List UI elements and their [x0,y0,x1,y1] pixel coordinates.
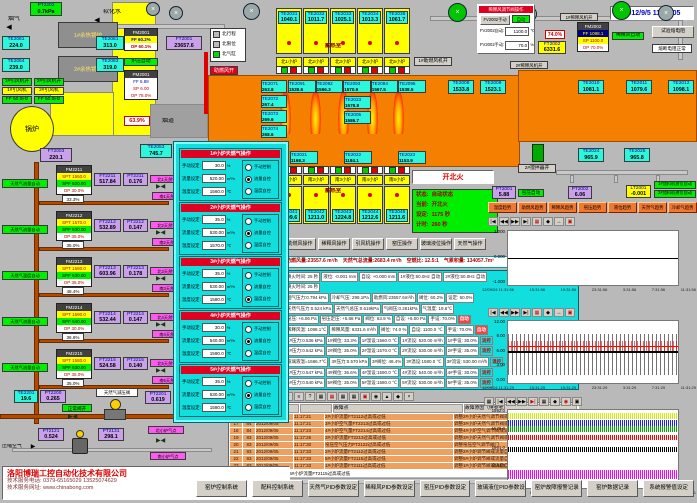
fv2002-auto-button[interactable]: 自动 [512,15,530,23]
radio-temp[interactable]: 温度自控 [243,401,278,413]
trend-button[interactable]: 液位趋势 [608,202,637,213]
id-fan2-status: 2#引风机开 [34,78,64,86]
fm-row: OP 35.0% [57,233,91,240]
radio-icon [245,338,252,345]
fm-title: FM2212 [57,212,91,219]
regenerator-label: 蓄热室 [318,43,348,49]
burner-panel-2: 2#小炉天燃气操作 手动设定:35.0% 流量设定:530.00m³/h 温度设… [179,202,282,255]
gas-branch-3: 天然气温度自动 FM2213 SPT 1580.0SPF 530.00OP 35… [0,257,190,303]
south-burner-label[interactable]: 南4小炉 [357,175,383,185]
trend-button[interactable]: 稀释风趋势 [548,202,577,213]
radio-label: 流量自控 [254,284,271,290]
field-label: 流量设定: [182,284,201,290]
alarm-header-cell: 故障点 [333,404,463,413]
radio-icon [245,284,252,291]
cell: 5#手设: 35.0% [446,378,479,388]
ytick: 3.00 [496,363,505,367]
chart-toolbar-icon[interactable]: |◀ [495,397,505,406]
parameter-row: 烟气压力:0.794 kPa冷却气压: 298.1Pa助燃风:23557.6m³… [285,293,577,303]
summary-item: 天然气总流量:2683.4 m³/h [343,259,402,265]
cell: 1538.6 [289,87,315,93]
chart-toolbar-icon[interactable]: ▣ [572,397,582,406]
cell: 1153.9 [399,158,425,164]
toolbar-icon[interactable]: × [404,392,414,401]
fm2002-panel[interactable]: FM2002 PF 1098.1SP 1100.0OP 70.0% [577,22,609,52]
temp-set-input[interactable]: 1560.0 [202,187,226,196]
cell: 83 [243,456,255,462]
valve-icon[interactable]: ▶◀ [156,368,165,374]
unit: ℃ [227,297,232,302]
radio-temp[interactable]: 温度自控 [243,293,278,305]
chart-toolbar-icon[interactable]: ▣ [565,308,575,317]
fire-status-row: 设定:1175 秒 [413,210,497,220]
pt2131-readout: PT2131298.1 [98,428,124,441]
chart-toolbar-icon[interactable]: ↔ [554,308,564,317]
xtick: 11:31:29 [681,385,696,390]
te2010-readout: TE20101081.1 [578,80,604,94]
te2032-line: 1011.7 [306,17,326,23]
pm2001-title: PM2001 [125,71,157,78]
chart1-plot[interactable] [507,230,679,286]
trend-button[interactable]: 冷却气趋势 [668,202,697,213]
chart3-plot[interactable] [507,409,679,489]
radio-icon [245,296,252,303]
pt2001-readout: PT20015.88 [492,186,516,199]
chart-toolbar-icon[interactable]: ▶| [528,397,538,406]
pt2201-line: 0.619 [146,397,170,403]
xtick: 19:31:29 [561,385,577,390]
fm-title: FM2215 [57,350,91,357]
port-dot [395,193,399,197]
toolbar-icon[interactable]: ▦ [316,392,326,401]
operation-button[interactable]: 天然气操作 [454,238,486,250]
chart2-toolbar: |◀◀◀▶▶▶|▦◆↔▣ [488,308,575,317]
cell: 2#压力:0.542 kPa [285,346,325,356]
cell: 21 [230,449,242,455]
manual-set-input[interactable]: 35.0 [202,215,226,224]
chart-toolbar-icon[interactable]: ▶▶ [510,308,520,317]
burner-indicator[interactable] [276,66,302,74]
cell: 自动状态 [432,192,454,198]
radio-manual[interactable]: 手动控制 [243,323,278,335]
mode-radio-group[interactable]: 手动控制 流量自控 温度自控 [242,160,279,199]
radio-flow[interactable]: 流量自控 [243,227,278,239]
toolbar-icon[interactable]: ▣ [360,392,370,401]
ft-readout: FT2211517.84 [94,173,121,186]
chart-toolbar-icon[interactable]: ◀◀ [506,397,516,406]
chart-toolbar-icon[interactable]: ◉ [561,397,571,406]
cell: 3#温设:1580.0 ℃ [404,357,443,367]
trend-button[interactable]: 窑压趋势 [578,202,607,213]
burner-indicator[interactable] [384,66,410,74]
flow-set-input[interactable]: 520.00 [202,174,226,183]
flow-set-input[interactable]: 540.00 [202,336,226,345]
gas-branch-1: 天然气流量自动 FM2211 SPT 1560.0SPF 520.00OP 30… [0,165,190,211]
unit: % [227,325,231,330]
chart-toolbar-icon[interactable]: ◀◀ [499,217,509,226]
ft-line: 532.44 [95,317,120,323]
te2083-line: 319.0 [97,65,123,71]
cell: 窑压定压: +5.88 Pa [320,315,363,325]
te2061-readout: TE2061224.0 [2,36,30,50]
cell: 4#流设: 540.00 m³/h [400,368,445,378]
radio-manual[interactable]: 手动控制 [243,269,278,281]
cell: 3#小炉空气量FT2213过高或过低 [325,421,453,427]
cell: 269.6 [262,117,286,123]
furnace-left-temps: TE2071263.8TE2072267.4TE2073269.6TE20742… [261,80,287,138]
radio-flow[interactable]: 流量自控 [243,281,278,293]
cell: 1578.8 [345,103,370,109]
xtick: 12/09/04 11:31:56 [482,287,514,292]
cell: 5#阀位: 35.0% [326,378,359,388]
radio-icon [245,350,252,357]
cell: 11:17:33 [294,449,324,455]
radio-manual[interactable]: 手动控制 [243,377,278,389]
burner-control-popup[interactable]: 1#小炉天燃气操作 手动设定:30.0% 流量设定:520.00m³/h 温度设… [174,142,288,422]
te2081-line: 313.0 [97,43,123,49]
fire-status-row: 状态:自动状态 [413,190,497,200]
te2053-line: 745.7 [141,151,171,157]
nav-button[interactable]: 窑炉控制系统 [196,480,247,497]
te2024-line: 965.9 [579,155,603,161]
cell: 当前: [416,202,429,208]
radio-label: 温度自控 [254,296,271,302]
alarm-header-cell [300,404,332,413]
toolbar-icon[interactable]: ≡ [294,392,304,401]
chart-toolbar-icon[interactable]: ↔ [554,217,564,226]
burner-indicator[interactable] [303,166,329,174]
nav-button[interactable]: 天然气PID参数设定 [308,480,359,497]
kiln-pressure-auto-label: 窑压自动 [518,189,544,197]
fv2002-auto-input[interactable]: 1100.0 [505,27,529,36]
cell: 1#小炉流量FT2111过高或过低 [325,463,453,469]
nav-button[interactable]: 窑炉数据记录 [587,480,638,497]
pt-line: 0.176 [124,179,147,185]
fv2002-auto-unit: ℃ [530,29,535,34]
te-readout: TE2074268.6 [261,125,287,138]
fm2215-panel[interactable]: FM2215 SPT 1580.0SPF 530.00OP 35.0% [56,349,92,379]
te2034-line: 1013.3 [360,17,380,23]
fm2001-panel[interactable]: FM2001 FF 60.2%OP 60.1% [124,28,158,51]
manual-set-input[interactable]: 35.0 [202,377,226,386]
radio-label: 流量自控 [254,176,271,182]
trend-button[interactable]: 天然气趋势 [638,202,667,213]
cell: 83 [243,435,255,441]
fm2212-panel[interactable]: FM2212 SPT 1570.0SPF 530.00OP 35.0% [56,211,92,241]
burner-indicator[interactable] [384,166,410,174]
xtick: 3:31:29 [623,385,636,390]
valve-icon[interactable]: ▶◀ [156,230,165,236]
cell: 阀位: 63.9 % [363,315,393,325]
mode-radio-group[interactable]: 手动控制 流量自控 温度自控 [242,268,279,307]
chart-toolbar-icon[interactable]: ◆ [543,308,553,317]
cell: 状态: [416,192,429,198]
south-burner-label[interactable]: 南3小炉 [330,175,356,185]
cell: 11:17:21 [294,421,324,427]
cell: 1570.9 [344,87,370,93]
pt-line: 0.147 [124,225,147,231]
port-dot [395,41,399,45]
pm2001-panel[interactable]: PM2001 FF 5.88SP 6.00OP 78.0% [124,70,158,100]
burner-indicator[interactable] [303,66,329,74]
valve-icon[interactable]: ▶◀ [68,414,77,420]
cell: 1567.5 [372,87,398,93]
cell: 自设: +0.000 mm [359,272,397,282]
chart-toolbar-icon[interactable]: |◀ [488,217,498,226]
cell: 1538.5 [399,87,425,93]
operation-button[interactable]: 窑压操作 [386,238,418,250]
fv2002-manual-row: FV2002手动: 70.0 % [480,41,534,50]
operation-button[interactable]: 助燃风操作 [284,238,316,250]
pt2121-readout: PT21210.524 [38,428,64,441]
unit: % [227,271,231,276]
cell: 2012/09/05 [256,428,293,434]
toolbar-icon[interactable]: ▦ [327,392,337,401]
field-label: 温度设定: [182,351,201,357]
fv2002-manual-button[interactable]: FV2002手动 [480,15,510,25]
toolbar-icon[interactable]: ▦ [349,392,359,401]
valve-icon[interactable]: ▶◀ [156,276,165,282]
south-burner-label[interactable]: 南5小炉 [384,175,410,185]
chart-toolbar-icon[interactable]: ▶▶ [517,397,527,406]
valve-position: 35.0% [62,379,84,387]
ytick: 12.00 [494,320,505,324]
temp-set-input[interactable]: 1590.0 [202,349,226,358]
cell: 4#小炉空气量FT2214过高或过低 [325,428,453,434]
te2201-readout: TE220119.6 [14,390,38,403]
te2045-line: 1211.6 [387,215,407,221]
chart-toolbar-icon[interactable]: ▣ [565,217,575,226]
flow-set-input[interactable]: 530.00 [202,228,226,237]
valve-icon[interactable]: ▶◀ [156,438,165,444]
burner-panel-title: 2#小炉天燃气操作 [181,204,280,212]
radio-flow[interactable]: 流量自控 [243,173,278,185]
cell: 烟气压力:0.794 kPa [285,293,329,303]
radio-icon [245,380,252,387]
toolbar-icon[interactable]: ▦ [338,392,348,401]
chart3-series5 [508,447,678,452]
chart-toolbar-icon[interactable]: ◆ [550,397,560,406]
legend-swatch [213,41,220,48]
toolbar-icon[interactable]: ▲ [382,392,392,401]
fan-icon: × [658,5,674,21]
chart-toolbar-icon[interactable]: ▶| [521,308,531,317]
xtick: 23:31:29 [592,385,608,390]
cell: 2#小炉流量FT2112过高或过低 [325,414,453,420]
legend-row: 北行程 [211,29,245,39]
cell: 窑压空气压力PT2122过高或过低 [325,442,453,448]
cell: 2#手设: 35.0% [446,346,479,356]
temp-set-input[interactable]: 1580.0 [202,295,226,304]
te2033-readout: TE20331025.1 [332,11,354,24]
te2064-readout: TE2064239.0 [2,58,30,72]
chart-toolbar-icon[interactable]: ▦ [484,397,494,406]
te-readout: TE20051586.7 [344,111,371,124]
fire-status-panel: 状态:自动状态当前:开北火设定:1175 秒计时:260 秒 [412,189,498,233]
chart1-toolbar: |◀◀◀▶▶▶|▦◆↔▣ [488,217,575,226]
radio-icon [245,326,252,333]
chart2-yaxis: 12.009.006.003.000.00 [484,320,505,382]
burner-panel-title: 4#小炉天燃气操作 [181,312,280,320]
nav-button[interactable]: 配料控制系统 [252,480,303,497]
crown-temps-row: TE20911538.6TE20921566.3TE20931570.9TE20… [288,80,426,93]
mode-radio-group[interactable]: 手动控制 流量自控 温度自控 [242,322,279,361]
ft-line: 524.58 [95,363,120,369]
nav-button[interactable]: 稀释风PID参数设定 [364,480,415,497]
nav-button[interactable]: 玻璃液位PID参数设定 [475,480,526,497]
operation-button[interactable]: 稀释风操作 [318,238,350,250]
nav-button[interactable]: 窑压PID参数设定 [420,480,471,497]
cell: 气阀压:0.261kPa [382,304,420,314]
cell: 18 [230,428,242,434]
field-label: 温度设定: [182,243,201,249]
chart-toolbar-icon[interactable]: ◀◀ [499,308,509,317]
cell: 4#温设:1590.0 ℃ [360,368,399,378]
radio-label: 流量自控 [254,392,271,398]
cell: 83 [243,442,255,448]
south-burner-label[interactable]: 南2小炉 [303,175,329,185]
chart3-series3 [508,426,678,432]
cell: 2012/09/05 [256,442,293,448]
chart-toolbar-icon[interactable]: ▶▶ [510,217,520,226]
fm2213-panel[interactable]: FM2213 SPT 1580.0SPF 530.00OP 35.0% [56,257,92,287]
toolbar-icon[interactable]: ◉ [371,392,381,401]
left-arrow-icon: ◀ [2,24,16,32]
burner-indicator[interactable] [330,166,356,174]
fm2214-panel[interactable]: FM2214 SPT 1590.0SPF 540.00OP 30.0% [56,303,92,333]
xtick: 15:31:56 [530,287,546,292]
chart3-toolbar: ▦|◀◀◀▶▶▶|▦◆◉▣ [484,397,582,406]
nav-button[interactable]: 窑炉故障报警记录 [531,480,582,497]
flow-set-input[interactable]: 530.00 [202,282,226,291]
manual-set-input[interactable]: 35.0 [202,269,226,278]
chart-toolbar-icon[interactable]: ◆ [543,217,553,226]
te2008-readout: TE20081533.8 [448,80,474,94]
test-fuse-button[interactable]: 试验熔电阻 [652,26,694,38]
cell: 玻璃液温=1586.7℃ [285,357,328,367]
fv2002-manual-input[interactable]: 70.0 [505,41,529,50]
cell: 窑压: +6.06 Pa [285,315,319,325]
port-dot [368,193,372,197]
gas-branch-2: 天然气流量自动 FM2212 SPT 1570.0SPF 530.00OP 35… [0,211,190,257]
trend-button[interactable]: 温度趋势 [488,202,517,213]
chart-toolbar-icon[interactable]: ▦ [532,217,542,226]
fm-row: SPT 1580.0 [57,357,91,364]
burner-indicator[interactable] [330,66,356,74]
ytick: 9.00 [496,334,505,338]
radio-temp[interactable]: 温度自控 [243,239,278,251]
burner-indicator[interactable] [357,66,383,74]
te-readout: TE2073269.6 [261,110,287,123]
branch-mode-label: 天然气流量自动 [2,179,48,188]
cell: 3#流设: 530.00 m³/h [445,357,490,367]
cell: 天然气总压:0.619kPa [334,304,381,314]
nav-button[interactable]: 系统报警值设定 [643,480,694,497]
te-readout: TE20211168.3 [290,151,318,164]
mode-radio-group[interactable]: 手动控制 流量自控 温度自控 [242,214,279,253]
cell: 1566.3 [317,87,343,93]
chart-toolbar-icon[interactable]: ▦ [539,397,549,406]
fm-row: SPF 530.00 [57,364,91,371]
unit: ℃ [227,189,232,194]
summary-item: 助燃风量:23557.6 m³/h [286,259,338,265]
pt2200-readout: PT22000.265 [40,390,66,403]
chart1-level-line [508,258,678,259]
radio-temp[interactable]: 温度自控 [243,347,278,359]
temp-set-input[interactable]: 1580.0 [202,403,226,412]
te2061-line: 224.0 [3,43,29,49]
radio-flow[interactable]: 流量自控 [243,389,278,401]
furnace-mid-temps: TE20231578.8TE20051586.7 [344,96,371,124]
mode-radio-group[interactable]: 手动控制 流量自控 温度自控 [242,376,279,415]
fm2211-panel[interactable]: FM2211 SPT 1560.0SPF 520.00OP 30.0% [56,165,92,195]
pt2002-readout: PT20026.06 [568,186,592,199]
valve-icon[interactable]: ▶◀ [156,322,165,328]
radio-label: 温度自控 [254,350,271,356]
radio-flow[interactable]: 流量自控 [243,335,278,347]
port-dot [287,41,291,45]
trend-button-row: 温度趋势助燃风趋势稀释风趋势窑压趋势液位趋势天然气趋势冷却气趋势 [488,202,697,213]
chart-toolbar-icon[interactable]: |◀ [488,308,498,317]
ft2002-line: 6331.6 [539,47,565,53]
xtick: 19:31:56 [561,287,577,292]
flow-meter-body [104,409,126,420]
legend-row: 北气缸 [211,49,245,59]
ft-line: 532.89 [95,225,120,231]
cell: 1586.7 [345,118,370,124]
radio-manual[interactable]: 手动控制 [243,161,278,173]
toolbar-icon[interactable]: ? [305,392,315,401]
id-fan1-label[interactable]: 1#引风机 [2,87,32,95]
te-readout: TE20931570.9 [343,80,371,93]
cell: 11:17:33 [294,463,324,469]
unit: m³/h [227,338,235,343]
chart-toolbar-icon[interactable]: ▶| [521,217,531,226]
xtick: 7:31:29 [652,385,665,390]
radio-label: 手动控制 [254,326,271,332]
id-fan2-label[interactable]: 2#引风机 [34,87,64,95]
valve-position: 36.6% [62,333,84,341]
valve-icon[interactable]: ▶◀ [156,184,165,190]
radio-icon [245,392,252,399]
flow-set-input[interactable]: 530.00 [202,390,226,399]
radio-temp[interactable]: 温度自控 [243,185,278,197]
operation-button[interactable]: 引风机操作 [352,238,384,250]
chart-toolbar-icon[interactable]: ▦ [532,308,542,317]
trend-button[interactable]: 助燃风趋势 [518,202,547,213]
chart3-yaxis: 1592.01578.01561.01544.01527.0 [482,409,505,487]
radio-manual[interactable]: 手动控制 [243,215,278,227]
pt-line: 0.178 [124,271,147,277]
burner-indicator[interactable] [357,166,383,174]
manual-set-input[interactable]: 30.0 [202,161,226,170]
fan-icon: × [448,3,467,22]
toolbar-icon[interactable]: ◆ [393,392,403,401]
cell: 268.6 [262,132,286,138]
operation-button[interactable]: 玻璃液位操作 [420,238,452,250]
cell: 22 [230,456,242,462]
chart2-plot[interactable] [507,320,679,384]
manual-set-input[interactable]: 30.0 [202,323,226,332]
ft2001-readout: FT200123657.6 [166,36,202,50]
cell: 11:17:30 [294,442,324,448]
fm2001-row: FF 60.2% [125,36,157,43]
cell: 天然气压力:0.524 kPa [285,304,333,314]
fire-direction-button[interactable]: 开北火 [412,170,494,184]
fm-title: FM2213 [57,258,91,265]
fan-icon: × [612,1,631,20]
temp-set-input[interactable]: 1570.0 [202,241,226,250]
